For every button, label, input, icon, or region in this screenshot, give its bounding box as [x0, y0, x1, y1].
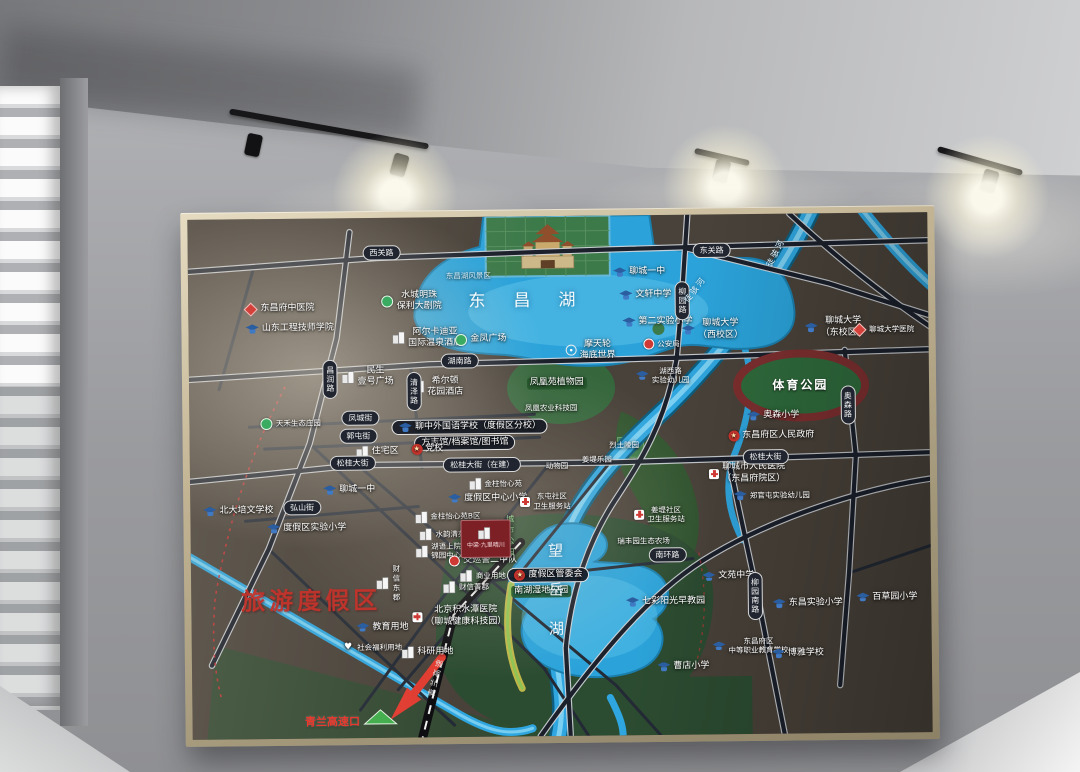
- star-icon: [514, 570, 525, 581]
- wangyue-lake-label: 望岳湖: [545, 542, 567, 659]
- hospital-icon: [709, 469, 719, 479]
- road-label: 郭屯街: [339, 429, 377, 444]
- huxilu-experimental-kindergarten: 湖西路实验幼儿园: [636, 366, 690, 385]
- tianhe-eco-manor: 天禾生态庄园: [261, 417, 321, 430]
- map-board: 东昌府中医院山东工程技师学院水城明珠保利大剧院阿尔卡迪亚国际温泉酒店金凤广场民生…: [180, 205, 940, 747]
- project-label: 中梁·九里晴川: [467, 540, 505, 549]
- building-icon: [393, 333, 405, 344]
- school-icon: [702, 572, 715, 582]
- green-icon: [261, 418, 273, 430]
- road-label: 东关路: [692, 243, 730, 258]
- river-label: 徒骇河: [764, 237, 788, 269]
- building-icon: [469, 479, 481, 490]
- school-icon: [399, 423, 412, 433]
- zoo: 动物园: [546, 461, 569, 471]
- building-icon: [420, 529, 432, 540]
- expressway-exit-label: 青兰高速口: [305, 713, 360, 730]
- liaocheng-peoples-hospital: 聊城市人民医院（东昌府院区）: [709, 462, 785, 485]
- road-label: 弘山街: [283, 500, 321, 515]
- school-icon: [323, 485, 336, 495]
- school-icon: [613, 267, 626, 277]
- qicai-sunshine-early-edu: 七彩阳光早教园: [626, 596, 705, 608]
- gov-icon: [411, 444, 422, 455]
- school-icon: [657, 662, 670, 672]
- road-label: 昌润路: [323, 360, 338, 399]
- aosen-primary: 奥森小学: [747, 410, 799, 422]
- road-label: 湖南路: [441, 353, 479, 368]
- jinzhu-yixinyuan: 金柱怡心苑: [469, 478, 522, 490]
- liaocheng-no1-middle-west: 聊城一中: [323, 484, 375, 496]
- gov-icon: [728, 431, 739, 442]
- hospital-icon: [634, 510, 644, 520]
- resort-district-map: 东昌府中医院山东工程技师学院水城明珠保利大剧院阿尔卡迪亚国际温泉酒店金凤广场民生…: [187, 212, 932, 740]
- research-land: 科研用地: [402, 647, 453, 659]
- public-security-bureau: 公安局: [643, 339, 680, 350]
- district-peoples-government: 东昌府区人民政府: [728, 430, 814, 442]
- green-icon: [455, 334, 467, 346]
- building-icon: [478, 528, 490, 539]
- liaocheng-no1-middle-north: 聊城一中: [613, 266, 665, 278]
- showroom-photo: 东昌府中医院山东工程技师学院水城明珠保利大剧院阿尔卡迪亚国际温泉酒店金凤广场民生…: [0, 0, 1080, 772]
- police-icon: [643, 339, 654, 350]
- sports-park-label: 体育公园: [772, 375, 828, 393]
- school-icon: [682, 325, 695, 335]
- wenxuan-middle-school: 文轩中学: [619, 289, 671, 301]
- zhengguantun-kindergarten: 郑官屯实验幼儿园: [734, 490, 810, 501]
- minsheng-no1-plaza: 民生壹号广场: [342, 366, 393, 389]
- building-icon: [461, 570, 473, 581]
- school-icon: [805, 323, 818, 333]
- arcadia-hot-spring-hotel: 阿尔卡迪亚国际温泉酒店: [393, 326, 462, 349]
- school-icon: [626, 597, 639, 607]
- road-label: 西关路: [362, 246, 400, 261]
- hospital-icon: [412, 612, 422, 622]
- road-label: 南环路: [648, 547, 686, 562]
- martyrs-cemetery: 烈士陵园: [609, 440, 639, 450]
- baicaoyuan-primary: 百草园小学: [856, 591, 917, 603]
- dongtun-community-clinic: 东屯社区卫生服务站: [520, 492, 571, 511]
- school-icon: [747, 411, 760, 421]
- school-icon: [636, 371, 649, 381]
- party-school: 党校: [411, 444, 443, 456]
- building-icon: [415, 511, 427, 522]
- fenghuang-agritech-park: 凤凰农业科技园: [525, 404, 578, 414]
- jinfeng-plaza: 金凤广场: [455, 333, 506, 346]
- ferris-wheel-sea-world: 摩天轮海底世界: [565, 339, 615, 362]
- road-label: 松桂大街（在建）: [443, 456, 521, 472]
- ruifengyuan-eco-farm: 瑞丰园生态农场: [617, 536, 670, 546]
- school-icon: [246, 324, 259, 334]
- scenic-area-label: 东昌湖风景区: [446, 271, 491, 281]
- poly-grand-theater: 水城明珠保利大剧院: [382, 290, 442, 313]
- education-land: 教育用地: [356, 622, 408, 634]
- resort-experimental-primary: 度假区实验小学: [267, 523, 346, 535]
- school-icon: [619, 290, 632, 300]
- building-icon: [416, 546, 428, 557]
- school-icon: [203, 507, 216, 517]
- road-label: 松桂大街: [742, 449, 788, 464]
- peiwen-school: 北大培文学校: [203, 506, 273, 518]
- jiangdi-community-clinic: 姜堤社区卫生服务站: [634, 505, 685, 524]
- diamond-icon: [243, 302, 257, 316]
- dongchang-experimental-primary: 东昌实验小学: [773, 597, 843, 609]
- school-icon: [773, 599, 786, 609]
- school-icon: [772, 649, 785, 659]
- fenghuangyuan-botanical-garden: 凤凰苑植物园: [527, 378, 587, 390]
- school-icon: [267, 524, 280, 534]
- road-label: 柳园南路: [747, 572, 763, 620]
- liaocheng-university-west: 聊城大学（西校区）: [682, 318, 743, 341]
- wall-corner: [60, 78, 88, 726]
- road-label: 奥森路: [840, 386, 855, 425]
- school-icon: [712, 641, 725, 651]
- school-icon: [448, 494, 461, 504]
- commercial-land: 商业用地: [461, 570, 506, 581]
- resort-district-title: 旅游度假区: [241, 580, 381, 616]
- resort-central-primary: 度假区中心小学: [448, 493, 527, 505]
- liaocheng-university-hospital: 聊城大学医院: [854, 324, 914, 335]
- hospital-icon: [520, 497, 530, 507]
- jiangdi-amusement-park: 姜堤乐园: [582, 455, 612, 465]
- police-icon: [449, 556, 460, 567]
- school-icon: [356, 623, 369, 633]
- road-label: 松桂大街: [330, 456, 376, 471]
- social-welfare-land: 社会福利用地: [344, 643, 402, 654]
- road-label: 清泽路: [406, 372, 421, 411]
- green-icon: [382, 296, 394, 308]
- project-marker: 中梁·九里晴川: [461, 519, 511, 558]
- shuiyun-qingyuan: 水韵清苑: [420, 529, 465, 540]
- shandong-engineering-college: 山东工程技师学院: [246, 323, 334, 335]
- building-icon: [342, 372, 354, 383]
- dongchang-lake-label: 东昌湖: [468, 285, 603, 311]
- dongchangfu-tcm-hospital: 东昌府中医院: [245, 303, 314, 315]
- boya-school: 博雅学校: [772, 648, 824, 660]
- building-icon: [402, 647, 414, 658]
- spotlight: [244, 133, 263, 158]
- school-icon: [856, 593, 869, 603]
- jishuitan-hospital: 北京积水潭医院（聊城健康科技园）: [412, 605, 506, 628]
- building-icon: [444, 582, 456, 593]
- heart-icon: [344, 643, 354, 653]
- spotlight: [389, 152, 409, 177]
- school-icon: [622, 317, 635, 327]
- road-label: 凤城街: [341, 410, 379, 425]
- school-icon: [734, 491, 747, 501]
- window-blinds: [0, 86, 62, 710]
- diamond-icon: [852, 323, 866, 337]
- ferris-icon: [565, 345, 576, 356]
- caixin-jingjun: 财信菁郡: [444, 581, 489, 592]
- liaozhong-foreign-language-school: 聊中外国语学校（度假区分校）: [392, 419, 548, 436]
- caodian-primary: 曹店小学: [657, 661, 709, 673]
